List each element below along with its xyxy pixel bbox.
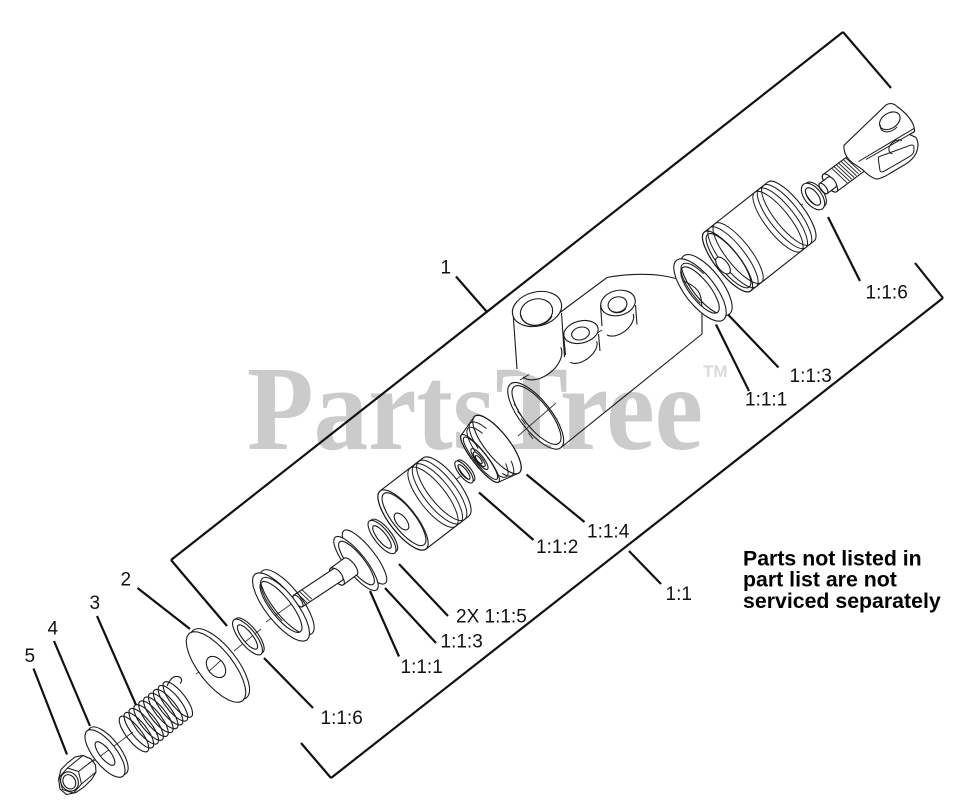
svg-text:TM: TM bbox=[703, 362, 728, 381]
svg-text:1:1:2: 1:1:2 bbox=[536, 537, 578, 558]
svg-text:1:1:4: 1:1:4 bbox=[587, 522, 630, 543]
svg-text:1: 1 bbox=[441, 258, 452, 279]
svg-text:2X 1:1:5: 2X 1:1:5 bbox=[456, 607, 527, 628]
svg-text:1:1:3: 1:1:3 bbox=[441, 632, 483, 653]
svg-text:1:1:1: 1:1:1 bbox=[745, 390, 787, 411]
svg-text:1:1:1: 1:1:1 bbox=[401, 657, 443, 678]
svg-text:4: 4 bbox=[48, 619, 59, 640]
svg-text:2: 2 bbox=[121, 570, 132, 591]
svg-text:1:1:6: 1:1:6 bbox=[321, 708, 363, 729]
svg-text:5: 5 bbox=[25, 646, 36, 667]
svg-text:3: 3 bbox=[90, 593, 101, 614]
svg-text:1:1:6: 1:1:6 bbox=[866, 283, 908, 304]
svg-text:1:1:3: 1:1:3 bbox=[790, 366, 832, 387]
svg-text:1:1: 1:1 bbox=[666, 584, 692, 605]
